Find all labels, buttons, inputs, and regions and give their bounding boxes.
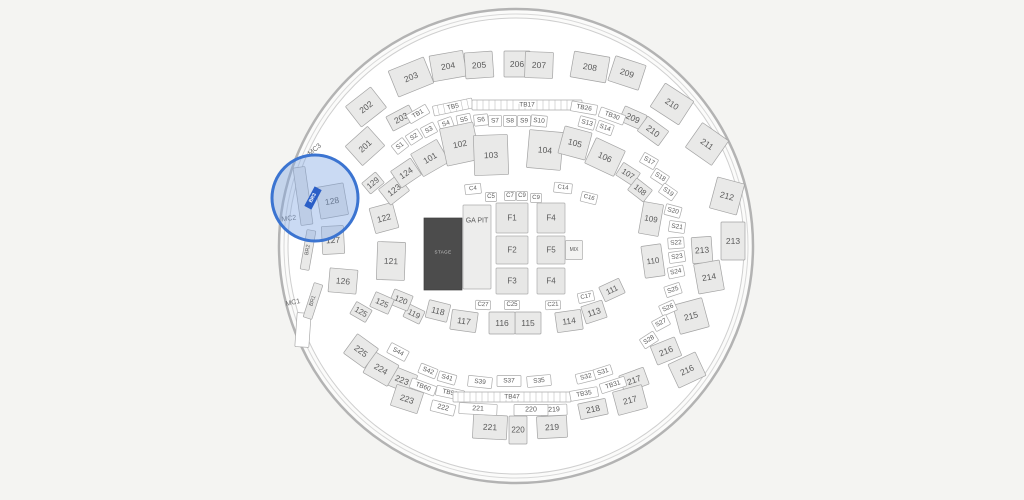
section-221[interactable]: 221 xyxy=(459,403,498,416)
section-126[interactable]: 126 xyxy=(328,268,358,294)
section-label: 219 xyxy=(548,406,560,413)
section-label: 121 xyxy=(384,256,399,266)
section-label: 207 xyxy=(532,60,547,70)
section-c9[interactable]: C9 xyxy=(530,193,541,202)
section-s8[interactable]: S8 xyxy=(504,116,517,127)
seat-map-canvas: 2012022032032042052062072082092092102102… xyxy=(0,0,1024,500)
section-label: GA PIT xyxy=(466,218,489,225)
section-s35[interactable]: S35 xyxy=(527,374,552,387)
section-label: S9 xyxy=(520,117,529,124)
section-label: TB47 xyxy=(504,394,520,401)
section-115[interactable]: 115 xyxy=(515,312,541,334)
section-label: F3 xyxy=(507,277,517,286)
section-label: S22 xyxy=(670,239,682,247)
section-tb47[interactable]: TB47 xyxy=(453,392,571,402)
section-label: 117 xyxy=(457,315,472,327)
section-c5[interactable]: C5 xyxy=(486,193,497,202)
section-f1[interactable]: F1 xyxy=(496,203,528,233)
section-label: F4 xyxy=(546,214,556,223)
section-label: C21 xyxy=(547,302,559,309)
section-110[interactable]: 110 xyxy=(641,244,665,278)
section-f2[interactable]: F2 xyxy=(496,236,528,264)
section-116[interactable]: 116 xyxy=(489,312,515,334)
section-label: 103 xyxy=(484,150,499,160)
section-label: S7 xyxy=(491,117,500,124)
section-205[interactable]: 205 xyxy=(464,51,494,79)
section-mix[interactable]: MIX xyxy=(566,241,583,260)
section-s23[interactable]: S23 xyxy=(668,250,685,263)
section-c9[interactable]: C9 xyxy=(517,192,528,201)
section-label: C5 xyxy=(487,194,495,200)
section-s10[interactable]: S10 xyxy=(531,115,548,127)
section-label: 220 xyxy=(525,407,537,414)
section-label: 221 xyxy=(472,405,484,413)
section-220[interactable]: 220 xyxy=(509,416,527,444)
section-103[interactable]: 103 xyxy=(473,134,508,175)
stage-label: STAGE xyxy=(435,250,452,255)
section-label: 110 xyxy=(646,256,660,267)
section-label: C14 xyxy=(557,184,569,191)
section-c27[interactable]: C27 xyxy=(475,300,490,310)
section-s37[interactable]: S37 xyxy=(497,376,521,387)
section-label: 219 xyxy=(545,422,560,433)
section-label: 126 xyxy=(335,275,350,286)
section-213[interactable]: 213 xyxy=(691,236,713,263)
section-label: MIX xyxy=(570,247,580,253)
section-label: S10 xyxy=(533,117,546,125)
section-f3[interactable]: F3 xyxy=(496,268,528,294)
section-label: 213 xyxy=(726,236,740,246)
section-label: C9 xyxy=(532,195,541,201)
section-f4[interactable]: F4 xyxy=(537,268,565,294)
section-f5[interactable]: F5 xyxy=(537,236,565,264)
section-204[interactable]: 204 xyxy=(429,50,467,82)
section-label: TB17 xyxy=(519,102,535,109)
section-s7[interactable]: S7 xyxy=(488,115,501,126)
section-s21[interactable]: S21 xyxy=(668,220,685,233)
section-s22[interactable]: S22 xyxy=(668,237,685,249)
section-label: S39 xyxy=(474,378,487,386)
section-s39[interactable]: S39 xyxy=(467,375,492,388)
section-c7[interactable]: C7 xyxy=(505,192,516,201)
section-121[interactable]: 121 xyxy=(376,242,405,281)
section-label: F1 xyxy=(507,214,517,223)
section-label: 205 xyxy=(472,59,487,70)
section-label: S6 xyxy=(477,116,486,124)
section-label: C4 xyxy=(469,186,478,193)
section-label: S35 xyxy=(533,377,546,385)
section-label: F5 xyxy=(546,246,556,255)
section-label: 114 xyxy=(562,315,577,327)
section-220[interactable]: 220 xyxy=(514,405,548,416)
section-s6[interactable]: S6 xyxy=(473,114,488,126)
section-label: 213 xyxy=(695,244,710,255)
seat-map: 2012022032032042052062072082092092102102… xyxy=(0,0,1024,500)
section-c14[interactable]: C14 xyxy=(554,182,573,194)
section-label: 221 xyxy=(483,422,498,433)
section-label: S8 xyxy=(506,118,514,125)
section-label: C9 xyxy=(518,193,526,199)
section-c25[interactable]: C25 xyxy=(505,301,520,310)
section-ga-pit[interactable]: GA PIT xyxy=(463,205,491,289)
section-label: C7 xyxy=(506,193,514,199)
section-207[interactable]: 207 xyxy=(525,52,554,79)
section-label: 116 xyxy=(495,318,509,328)
section-c4[interactable]: C4 xyxy=(465,183,482,195)
section-label: 104 xyxy=(537,144,552,155)
section-114[interactable]: 114 xyxy=(555,309,584,332)
section-213[interactable]: 213 xyxy=(721,222,745,260)
section-s9[interactable]: S9 xyxy=(517,115,530,126)
stage: STAGE xyxy=(424,218,462,290)
section-label: 206 xyxy=(510,59,524,69)
section-117[interactable]: 117 xyxy=(450,309,479,332)
section-219[interactable]: 219 xyxy=(536,415,567,439)
section-label: C25 xyxy=(506,302,518,308)
section-c21[interactable]: C21 xyxy=(545,300,560,310)
section-214[interactable]: 214 xyxy=(694,260,725,294)
section-f4[interactable]: F4 xyxy=(537,203,565,233)
section-104[interactable]: 104 xyxy=(526,130,563,171)
section-221[interactable]: 221 xyxy=(472,414,507,440)
section-tb17[interactable]: TB17 xyxy=(472,100,582,110)
section-label: C27 xyxy=(477,302,489,308)
section-label: F2 xyxy=(507,246,517,255)
section-label: 115 xyxy=(521,318,535,328)
section-label: F4 xyxy=(546,277,556,286)
section-label: S37 xyxy=(503,378,515,385)
section-label: 220 xyxy=(511,426,525,435)
